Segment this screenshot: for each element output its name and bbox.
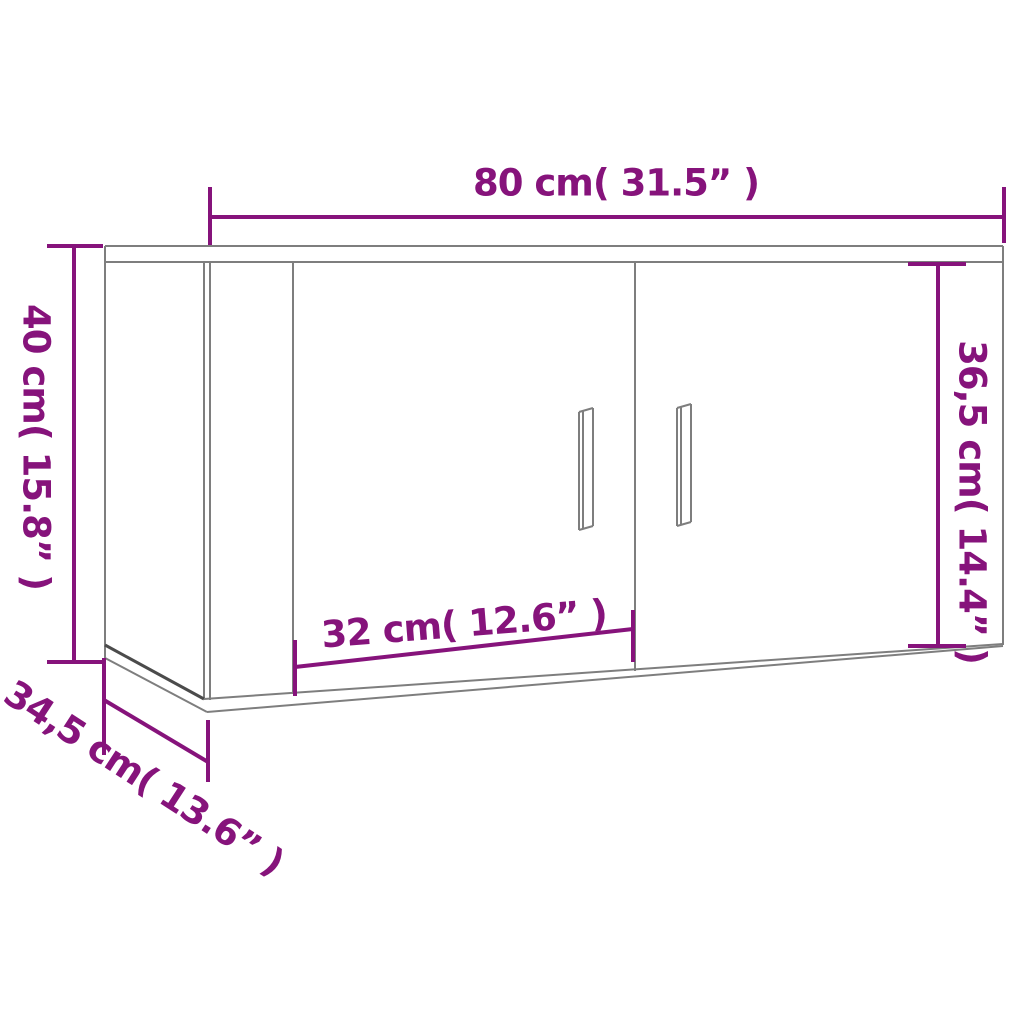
bottom-panel: [105, 644, 1003, 712]
cabinet-line-drawing: [0, 0, 1024, 1024]
door-height-dimension-label: 36,5 cm( 14.4” ): [951, 340, 994, 664]
right-door-handle: [677, 404, 691, 526]
cabinet-outline: [105, 246, 1003, 712]
left-side-panel: [105, 262, 210, 700]
left-door-handle: [579, 408, 593, 530]
product-dimension-diagram: 80 cm( 31.5” ) 40 cm( 15.8” ) 36,5 cm( 1…: [0, 0, 1024, 1024]
width-dimension-label: 80 cm( 31.5” ): [473, 162, 759, 205]
height-dimension-label: 40 cm( 15.8” ): [15, 304, 58, 590]
top-panel: [105, 246, 1003, 262]
